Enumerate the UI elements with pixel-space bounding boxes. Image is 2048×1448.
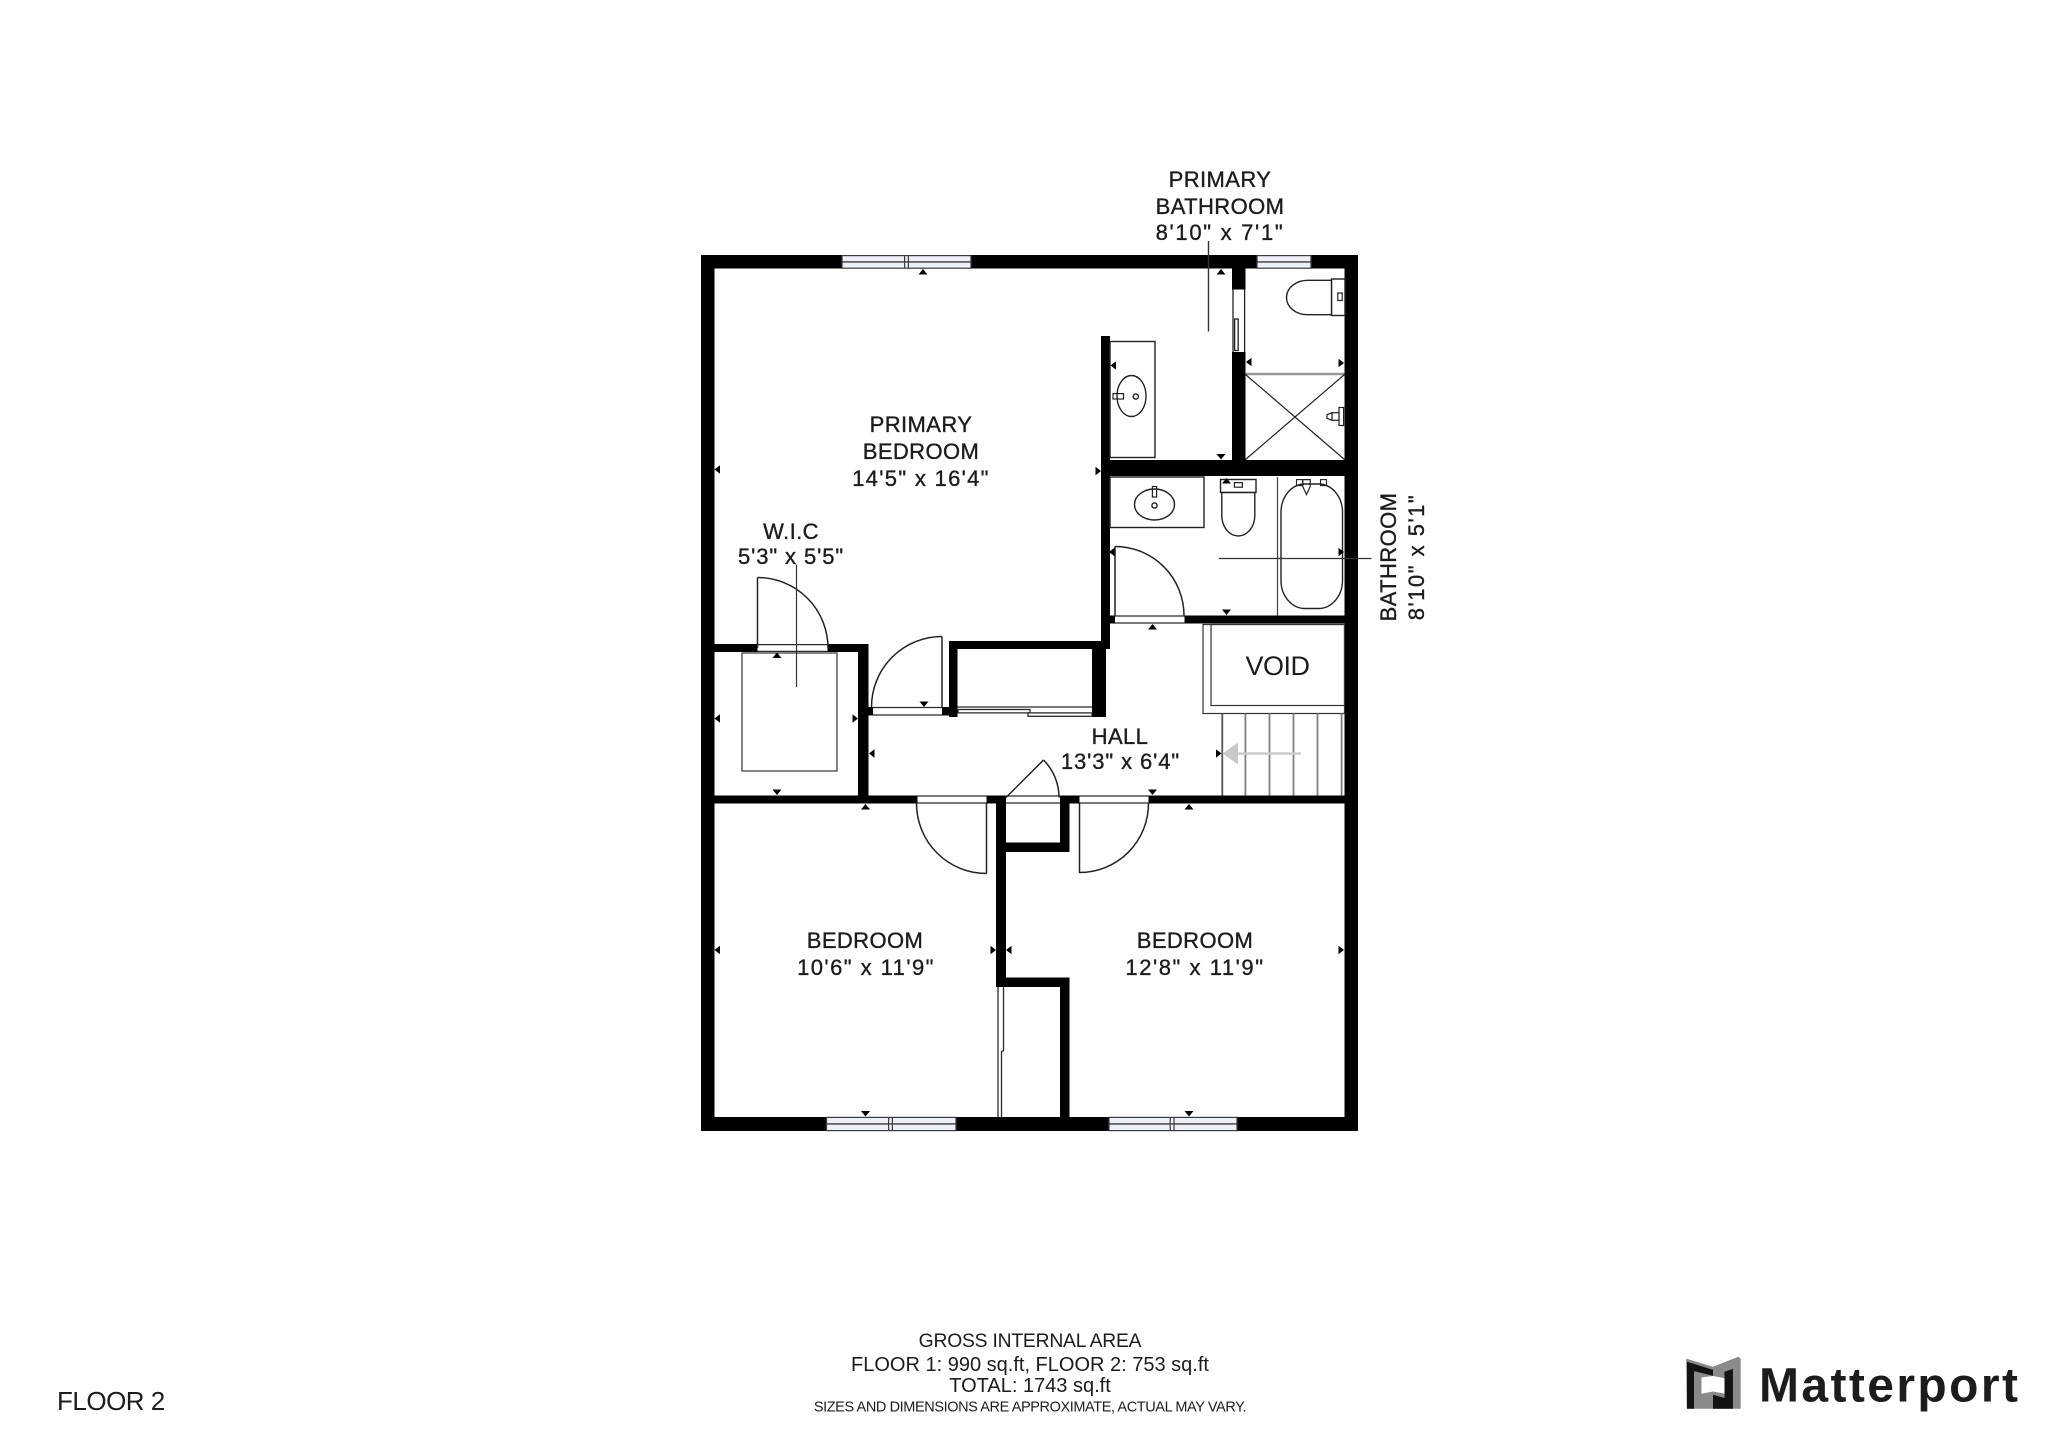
svg-text:13'3" x 6'4": 13'3" x 6'4" — [1061, 749, 1180, 774]
svg-text:FLOOR 2: FLOOR 2 — [57, 1386, 165, 1416]
svg-text:Matterport: Matterport — [1759, 1360, 2020, 1413]
svg-text:12'8" x 11'9": 12'8" x 11'9" — [1125, 955, 1264, 980]
svg-text:BATHROOM: BATHROOM — [1156, 194, 1285, 219]
svg-text:PRIMARY: PRIMARY — [1169, 167, 1272, 192]
svg-text:PRIMARY: PRIMARY — [870, 412, 973, 437]
svg-text:BATHROOM: BATHROOM — [1376, 493, 1401, 622]
svg-text:FLOOR 1: 990 sq.ft, FLOOR 2: 7: FLOOR 1: 990 sq.ft, FLOOR 2: 753 sq.ft — [851, 1354, 1209, 1376]
svg-text:HALL: HALL — [1092, 724, 1149, 749]
svg-text:8'10" x 5'1": 8'10" x 5'1" — [1404, 494, 1429, 620]
svg-text:SIZES AND DIMENSIONS ARE APPRO: SIZES AND DIMENSIONS ARE APPROXIMATE, AC… — [814, 1400, 1246, 1416]
svg-text:5'3" x 5'5": 5'3" x 5'5" — [738, 544, 844, 569]
svg-text:8'10" x 7'1": 8'10" x 7'1" — [1156, 220, 1285, 245]
svg-text:VOID: VOID — [1245, 651, 1309, 681]
svg-text:BEDROOM: BEDROOM — [863, 439, 979, 464]
svg-text:BEDROOM: BEDROOM — [1137, 928, 1253, 953]
svg-text:14'5" x 16'4": 14'5" x 16'4" — [852, 466, 990, 491]
svg-text:W.I.C: W.I.C — [763, 519, 819, 544]
svg-text:BEDROOM: BEDROOM — [807, 928, 923, 953]
svg-text:10'6" x 11'9": 10'6" x 11'9" — [797, 955, 935, 980]
svg-text:GROSS INTERNAL AREA: GROSS INTERNAL AREA — [919, 1331, 1142, 1352]
svg-text:TOTAL: 1743 sq.ft: TOTAL: 1743 sq.ft — [949, 1375, 1111, 1397]
